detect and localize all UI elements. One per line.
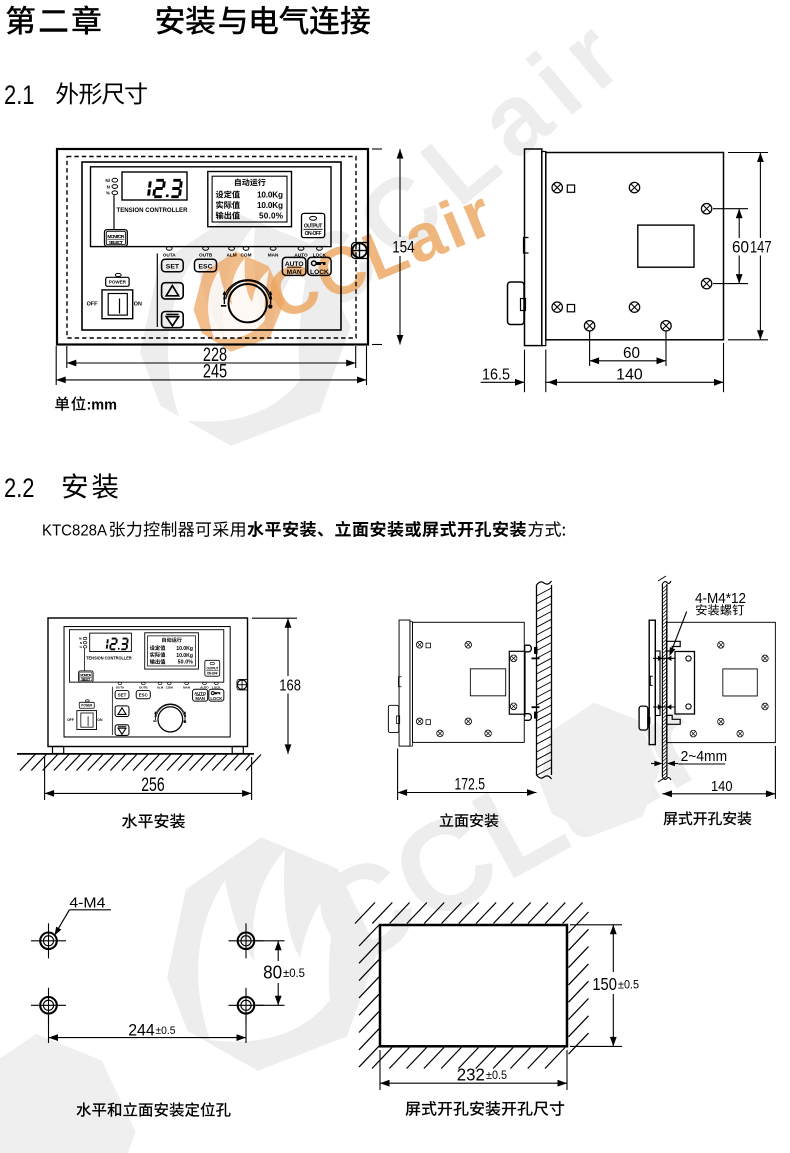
svg-text:140: 140 — [711, 778, 733, 795]
svg-text:16.5: 16.5 — [482, 367, 510, 384]
svg-text:140: 140 — [616, 367, 643, 384]
svg-text:KTC828A: KTC828A — [42, 523, 107, 540]
svg-text:154: 154 — [392, 238, 415, 257]
svg-text:147: 147 — [750, 238, 772, 257]
svg-text:232: 232 — [457, 1065, 485, 1085]
svg-text:4-M4: 4-M4 — [69, 895, 105, 912]
svg-text:4-M4*12: 4-M4*12 — [695, 591, 746, 607]
svg-text:168: 168 — [279, 677, 301, 694]
svg-text:CCLair: CCLair — [289, 668, 725, 997]
svg-text:±0.5: ±0.5 — [618, 980, 639, 992]
svg-text:245: 245 — [203, 362, 227, 383]
svg-text:2.1: 2.1 — [4, 80, 35, 110]
svg-text:172.5: 172.5 — [455, 776, 486, 794]
svg-text:±0.5: ±0.5 — [283, 968, 305, 980]
svg-text:244: 244 — [128, 1022, 155, 1040]
svg-text:2.2: 2.2 — [4, 473, 35, 503]
svg-text:256: 256 — [141, 774, 165, 796]
svg-text::mm: :mm — [87, 398, 118, 414]
svg-text:60: 60 — [732, 238, 749, 257]
svg-text:150: 150 — [592, 974, 617, 994]
svg-text:±0.5: ±0.5 — [156, 1025, 176, 1037]
svg-text:80: 80 — [263, 962, 282, 983]
svg-text:±0.5: ±0.5 — [486, 1070, 507, 1082]
svg-text:2~4mm: 2~4mm — [681, 749, 728, 765]
svg-text:60: 60 — [623, 345, 640, 362]
